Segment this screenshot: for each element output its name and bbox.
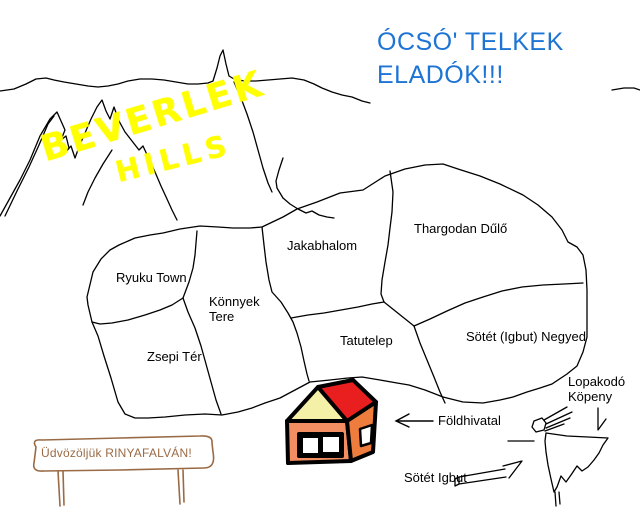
border-tatutelep-thargodan — [384, 302, 414, 326]
region-label-tatutelep: Tatutelep — [340, 333, 393, 348]
map-outer-boundary — [87, 164, 587, 418]
land-office-arrow — [396, 414, 433, 427]
mountain-inner-slope-2 — [83, 150, 112, 205]
annotation-foldhivatal: Földhivatal — [438, 413, 501, 428]
region-label-jakabhalom: Jakabhalom — [287, 238, 357, 253]
annotation-sotet-igbut: Sötét Igbut — [404, 470, 467, 485]
cloak-leg-2 — [559, 492, 560, 504]
cloak-leg-1 — [555, 492, 556, 506]
house-window-pane-left — [303, 438, 318, 453]
border-jakabhalom-bottom — [291, 302, 384, 318]
land-map — [87, 164, 587, 418]
annotation-lopakodo-kopeny: Lopakodó Köpeny — [568, 374, 640, 404]
region-label-zsepi-ter: Zsepi Tér — [147, 349, 202, 364]
horizon-line-right — [612, 88, 640, 90]
sale-headline-line2: ELADÓK!!! — [377, 59, 564, 92]
region-label-konnyek-tere: Könnyek Tere — [209, 294, 265, 324]
sign-leg-right — [178, 470, 184, 504]
paint-canvas: { "headline": { "line1": "ÓCSÓ' TELKEK",… — [0, 0, 640, 512]
region-label-sotet-igbut-negyed: Sötét (Igbut) Negyed — [466, 329, 586, 344]
arrow-3d-head — [503, 461, 522, 478]
cloak-ray-1 — [544, 407, 567, 420]
cloak-figure — [508, 407, 608, 506]
border-thargodan-sotet — [414, 283, 583, 326]
house-side-window — [360, 425, 372, 446]
sale-headline: ÓCSÓ' TELKEK ELADÓK!!! — [377, 26, 564, 92]
border-ryuku-zsepi — [92, 298, 183, 324]
cloak-pointer-arrow — [598, 408, 606, 430]
welcome-sign-text: Üdvözöljük RINYAFALVÁN! — [41, 446, 192, 460]
sign-leg-left — [58, 471, 64, 506]
region-label-thargodan-dulo: Thargodan Dűlő — [414, 221, 507, 236]
house-drawing — [287, 380, 376, 463]
cloak-cape — [545, 433, 608, 492]
house-window-pane-right — [323, 437, 339, 452]
sale-headline-line1: ÓCSÓ' TELKEK — [377, 26, 564, 59]
border-ryuku-konnyek — [183, 231, 197, 298]
border-jakabhalom-thargodan — [381, 171, 393, 302]
tall-peak-ridge-2 — [276, 158, 283, 198]
mountain-base-squiggle — [283, 198, 334, 218]
region-label-ryuku-town: Ryuku Town — [116, 270, 187, 285]
